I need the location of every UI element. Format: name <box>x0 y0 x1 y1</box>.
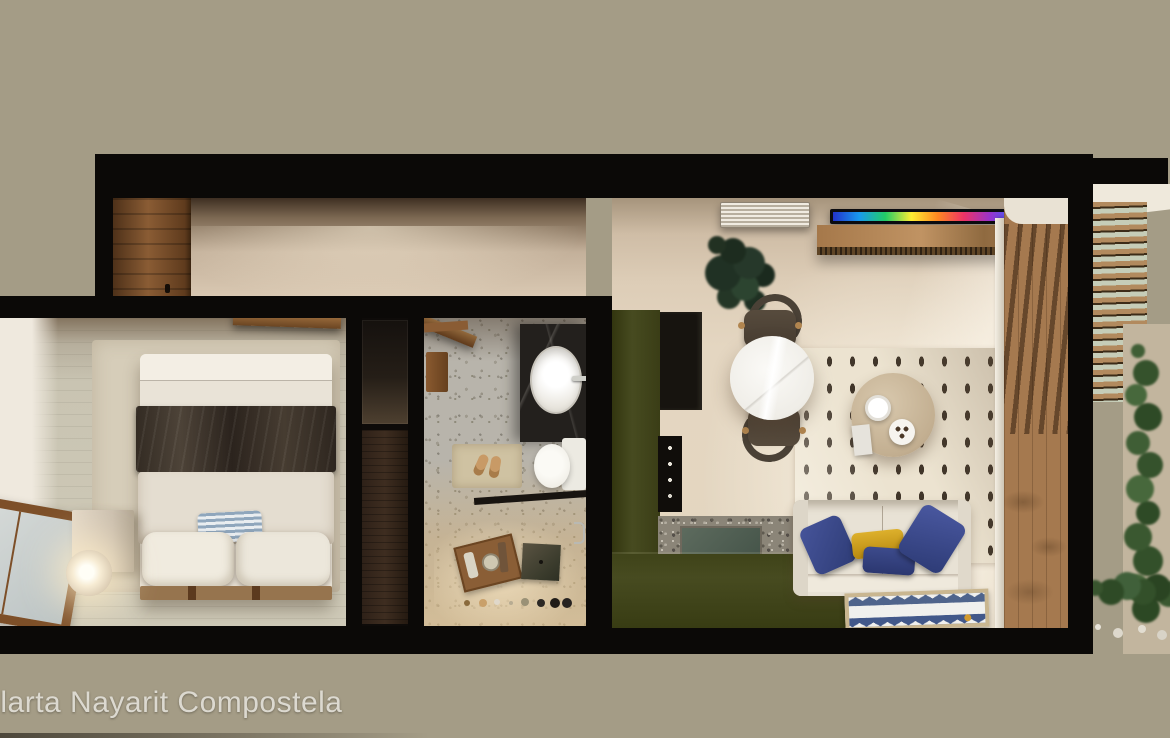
exterior-wall <box>1123 324 1170 654</box>
wall-bedroom-closet <box>346 296 362 654</box>
toilet <box>534 444 570 488</box>
closet <box>362 318 408 626</box>
body-brush <box>497 542 508 573</box>
chair-arm <box>795 322 802 329</box>
window-mullion <box>1 511 21 614</box>
bed-pillow-right <box>236 532 330 586</box>
wall-closet-bathroom <box>408 296 424 654</box>
dining-table <box>730 336 814 420</box>
kitchen-sink <box>680 526 762 556</box>
tray <box>851 424 872 456</box>
entry-corridor <box>113 198 586 296</box>
bath-mat <box>452 444 522 488</box>
closet-wardrobe <box>362 430 408 624</box>
bed-blanket <box>136 406 336 472</box>
shampoo-bottle <box>463 551 479 579</box>
vertical-garden-plants <box>1131 344 1145 358</box>
closet-upper-cabinet <box>362 320 408 424</box>
sink-faucet <box>572 376 586 381</box>
exterior-terrace <box>1093 184 1170 654</box>
backgammon-mat <box>844 588 989 628</box>
balcony-deck <box>1004 198 1068 628</box>
monstera-plant <box>708 236 726 254</box>
bed-headboard-edge <box>140 354 332 381</box>
wall-left <box>95 154 113 314</box>
floor-lamp <box>66 550 112 596</box>
wall-bedroom-top <box>0 296 612 318</box>
wall-top <box>95 154 1093 198</box>
balcony-wall <box>1004 198 1068 224</box>
shower-tray <box>521 543 561 581</box>
wall-bedroom-bottom <box>0 626 612 654</box>
bench-strap <box>188 586 196 600</box>
chair-arm <box>738 322 745 329</box>
cooktop-panel <box>658 436 682 512</box>
bowl <box>889 419 915 445</box>
leaf-shadows <box>1004 448 1068 628</box>
wall-stub-top-right <box>1090 158 1168 184</box>
corridor-light <box>153 226 586 296</box>
ac-vent <box>720 202 810 228</box>
bedroom <box>0 318 346 626</box>
wall-living-bottom <box>586 628 1093 654</box>
wall-right <box>1068 154 1093 654</box>
sandal <box>488 455 502 478</box>
bed-pillow-left <box>142 532 234 586</box>
sliding-door-track <box>995 218 1004 628</box>
bed-end-bench <box>140 586 332 600</box>
door-handle <box>165 284 170 293</box>
paving-stones <box>1095 624 1101 630</box>
wall-bathroom-living <box>586 296 612 654</box>
chair-arm <box>742 427 749 434</box>
shower-fixture <box>574 522 585 544</box>
slat-shadows <box>1004 224 1068 434</box>
cup <box>865 395 891 421</box>
living-dining-area <box>612 198 1068 628</box>
sandal <box>472 453 490 477</box>
entry-door <box>113 198 191 296</box>
sofa-armrest-right <box>958 500 971 596</box>
bathroom <box>424 318 586 626</box>
floorplan-render: allarta Nayarit Compostela <box>0 0 1170 738</box>
caption-text: allarta Nayarit Compostela <box>0 686 342 720</box>
refrigerator <box>660 312 702 410</box>
chair-arm <box>799 427 806 434</box>
bathroom-cabinet <box>426 352 448 392</box>
backgammon-points-top <box>849 593 985 607</box>
toiletry-items <box>464 600 470 606</box>
bench-strap <box>252 586 260 600</box>
bottom-shadow-edge <box>0 733 430 738</box>
hedge-plants <box>1093 580 1103 596</box>
bed <box>140 354 332 600</box>
